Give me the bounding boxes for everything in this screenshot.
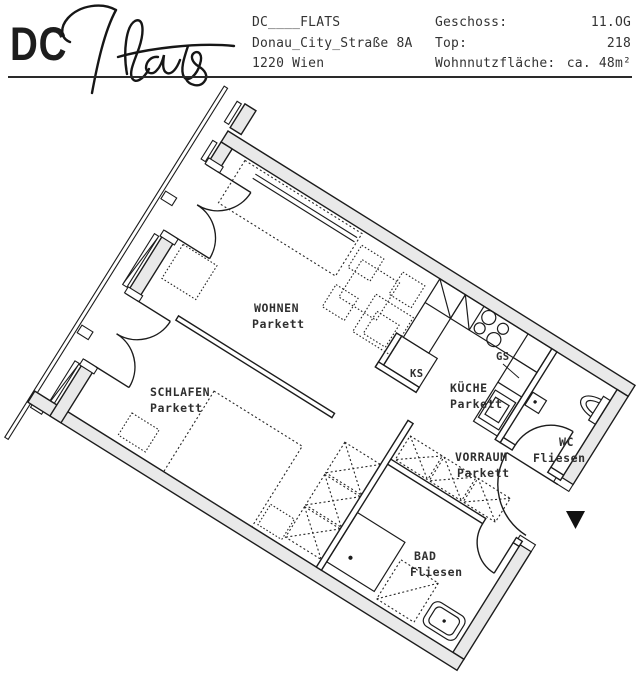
wall-east-lower xyxy=(453,545,531,660)
address-block: DC____FLATS Donau_City_Straße 8A 1220 Wi… xyxy=(252,13,413,75)
detail-label: Geschoss: xyxy=(435,13,507,34)
bedroom-balcony-door-swing xyxy=(96,334,150,388)
wall-north xyxy=(221,131,635,396)
bath-sink-drain xyxy=(442,619,447,624)
toilet-bowl-inner xyxy=(583,397,599,413)
balcony-joint xyxy=(77,325,93,340)
balcony-joint xyxy=(161,191,177,206)
kitchen-counter-left xyxy=(403,279,465,353)
room-floor-kueche: Parkett xyxy=(450,397,503,411)
page: WOHNEN Parkett SCHLAFEN Parkett KÜCHE Pa… xyxy=(0,0,640,692)
dining-table xyxy=(339,260,400,321)
wall-south xyxy=(28,391,464,670)
detail-value: 11.OG xyxy=(591,13,631,34)
details-block: Geschoss: 11.OG Top: 218 Wohnnutzfläche:… xyxy=(435,13,631,75)
detail-value: 218 xyxy=(607,34,631,55)
basin-drain xyxy=(533,400,538,405)
armchair xyxy=(162,244,217,299)
cooktop-burner xyxy=(484,330,503,349)
street: Donau_City_Straße 8A xyxy=(252,34,413,55)
plan-rotated-group xyxy=(5,86,640,692)
dining-chair xyxy=(348,245,384,281)
room-floor-wohnen: Parkett xyxy=(252,317,305,331)
room-floor-wc: Fliesen xyxy=(533,451,586,465)
balcony-door-swing xyxy=(176,205,230,259)
flats-signature-icon xyxy=(0,0,260,100)
room-label-vorraum: VORRAUM xyxy=(455,450,508,464)
header: DC DC____FLATS Donau_City_Straße 8A 1220… xyxy=(0,0,640,100)
floorplan-drawing: WOHNEN Parkett SCHLAFEN Parkett KÜCHE Pa… xyxy=(0,0,640,692)
city: 1220 Wien xyxy=(252,54,413,75)
room-label-bad: BAD xyxy=(414,549,437,563)
wall-schlafen-bad xyxy=(316,420,413,570)
fridge-label: KS xyxy=(410,368,423,380)
counter-division xyxy=(513,334,528,358)
dishwasher-label: GS xyxy=(496,351,509,363)
header-divider xyxy=(8,76,632,78)
room-label-schlafen: SCHLAFEN xyxy=(150,385,210,399)
balcony-door-leaf xyxy=(218,172,251,193)
shower xyxy=(327,513,405,592)
counter-division xyxy=(498,382,522,397)
room-label-wohnen: WOHNEN xyxy=(254,301,299,315)
dining-chair xyxy=(322,285,358,321)
balcony-door-leaf xyxy=(176,238,209,259)
entrance-arrow-icon xyxy=(566,511,585,529)
room-floor-bad: Fliesen xyxy=(410,565,463,579)
room-label-kueche: KÜCHE xyxy=(450,380,488,395)
bedroom-balcony-door-leaf xyxy=(137,301,170,322)
balcony-door-swing xyxy=(197,172,251,226)
detail-label: Top: xyxy=(435,34,467,55)
bedroom-balcony-door-leaf xyxy=(96,367,129,388)
detail-value: ca. 48m² xyxy=(567,54,631,75)
detail-row-flaeche: Wohnnutzfläche: ca. 48m² xyxy=(435,54,631,75)
detail-label: Wohnnutzfläche: xyxy=(435,54,555,75)
room-label-wc: WC xyxy=(559,435,574,449)
project-name: DC____FLATS xyxy=(252,13,413,34)
detail-row-top: Top: 218 xyxy=(435,34,631,55)
room-floor-schlafen: Parkett xyxy=(150,401,203,415)
wall-wc-south-a xyxy=(500,438,515,451)
nightstand xyxy=(118,413,159,452)
bath-door-swing xyxy=(464,524,514,574)
room-floor-vorraum: Parkett xyxy=(457,466,510,480)
bedroom-balcony-door-swing xyxy=(117,301,171,355)
detail-row-geschoss: Geschoss: 11.OG xyxy=(435,13,631,34)
toilet-bowl xyxy=(576,391,601,417)
dining-chair xyxy=(389,272,425,308)
shower-drain xyxy=(348,555,354,561)
